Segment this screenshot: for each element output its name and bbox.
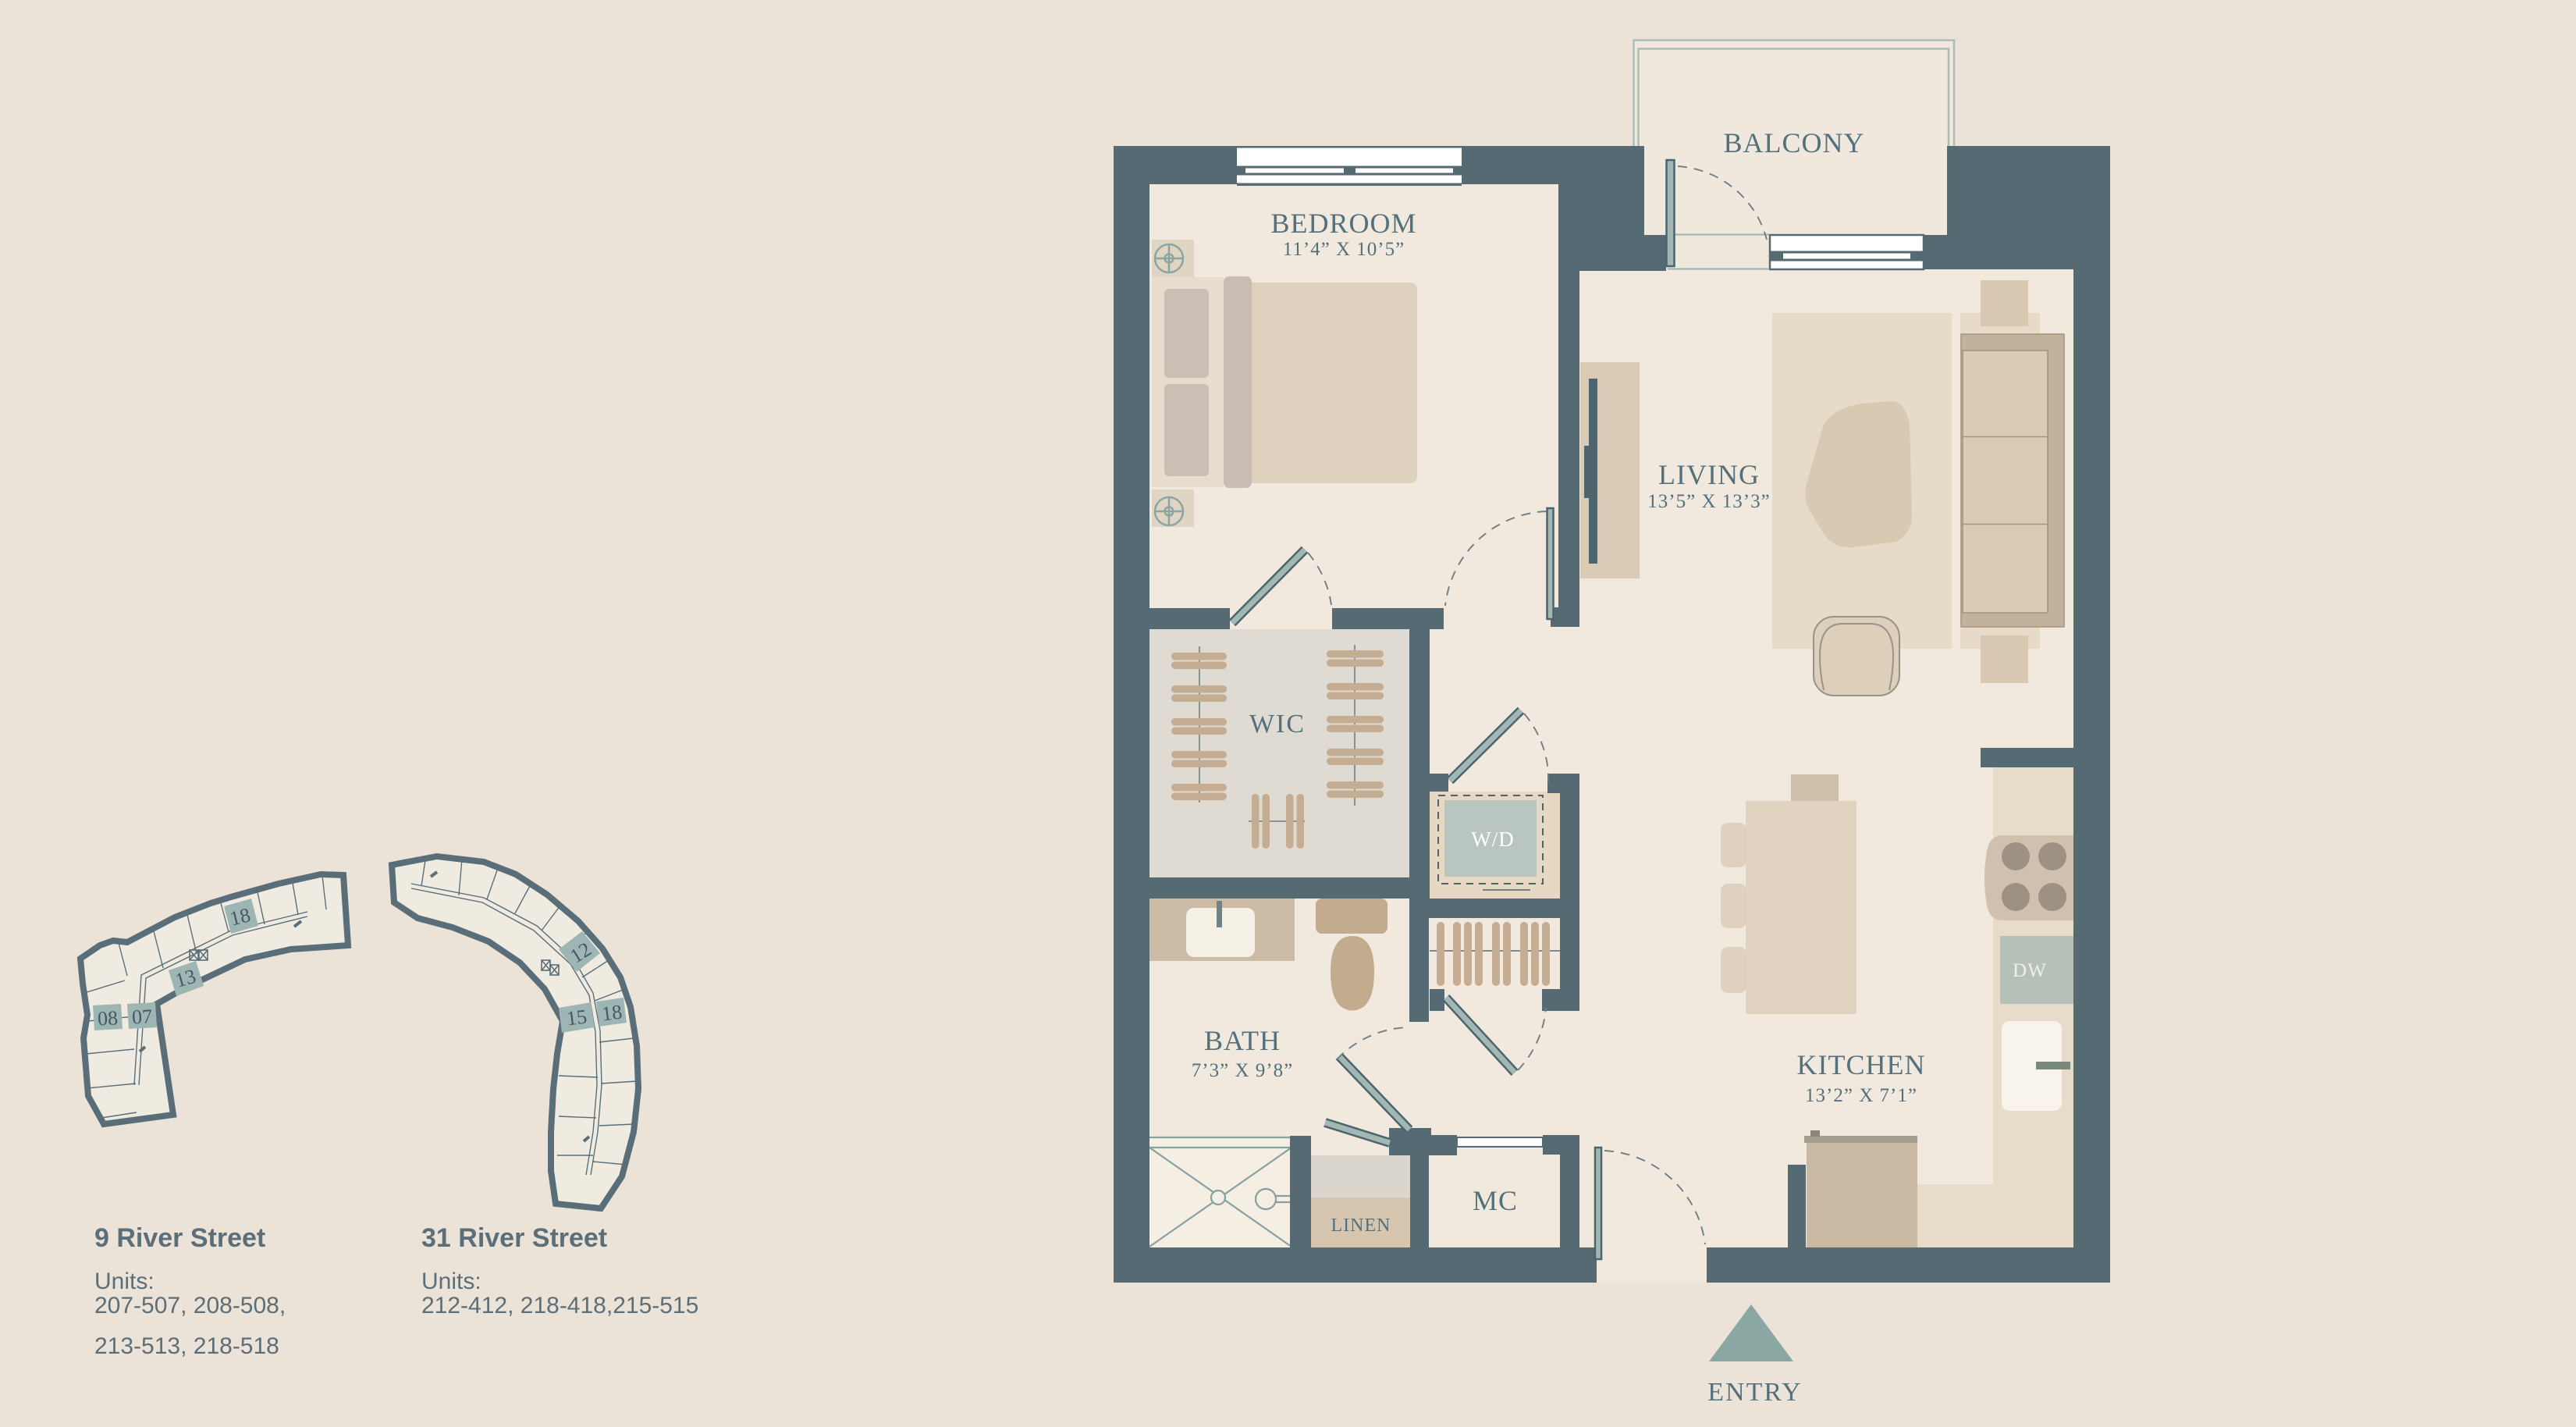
svg-text:LINEN: LINEN [1331,1215,1391,1236]
svg-text:13’2” X 7’1”: 13’2” X 7’1” [1805,1085,1917,1106]
svg-text:08: 08 [97,1006,118,1030]
svg-text:BATH: BATH [1204,1025,1281,1056]
svg-text:31 River Street: 31 River Street [421,1223,607,1253]
svg-text:9 River Street: 9 River Street [94,1223,265,1253]
svg-text:MC: MC [1473,1185,1518,1216]
svg-text:207-507, 208-508,: 207-507, 208-508, [94,1293,286,1318]
svg-text:ENTRY: ENTRY [1707,1378,1802,1407]
svg-text:WIC: WIC [1249,710,1306,738]
svg-text:212-412, 218-418,215-515: 212-412, 218-418,215-515 [421,1293,698,1318]
svg-text:213-513, 218-518: 213-513, 218-518 [94,1333,279,1359]
svg-text:7’3” X 9’8”: 7’3” X 9’8” [1192,1060,1293,1081]
svg-text:18: 18 [600,1001,623,1026]
svg-text:KITCHEN: KITCHEN [1797,1049,1926,1080]
svg-text:BEDROOM: BEDROOM [1270,208,1416,239]
svg-text:11’4” X 10’5”: 11’4” X 10’5” [1283,239,1405,260]
svg-text:13’5” X 13’3”: 13’5” X 13’3” [1647,491,1770,512]
svg-text:Units:: Units: [94,1269,155,1294]
svg-text:DW: DW [2013,960,2047,981]
svg-text:15: 15 [565,1005,588,1030]
svg-text:07: 07 [131,1005,152,1028]
svg-text:W/D: W/D [1471,827,1514,851]
svg-text:LIVING: LIVING [1658,459,1760,490]
svg-text:Units:: Units: [421,1269,481,1294]
svg-text:BALCONY: BALCONY [1723,127,1864,158]
